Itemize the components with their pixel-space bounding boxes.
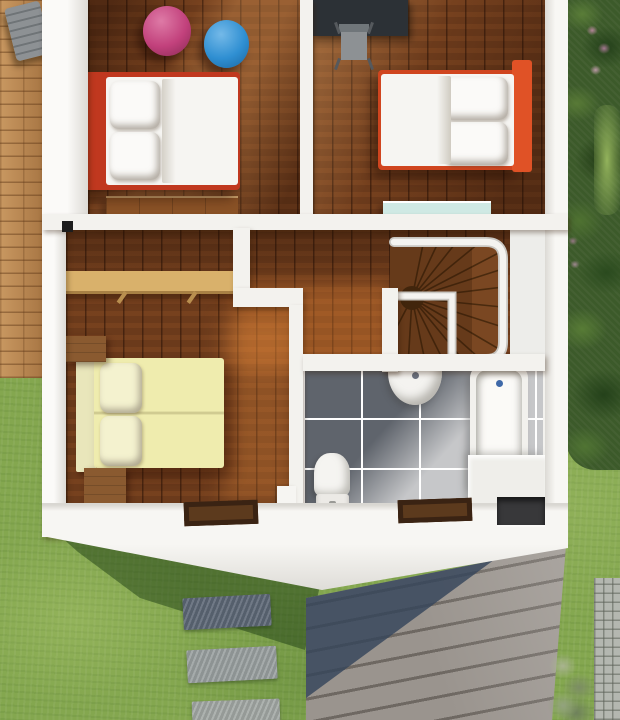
pillow — [444, 122, 508, 165]
bed-red-frame — [84, 72, 240, 190]
bed-orange-frame — [378, 60, 532, 172]
toilet-bowl — [314, 453, 350, 498]
blue-ball-seat — [204, 20, 249, 68]
pink-flower-cluster — [582, 16, 616, 88]
wall-horizontal-main — [42, 214, 568, 230]
pillow — [100, 416, 142, 466]
wall-outer-left-lower — [42, 221, 66, 537]
nightstand — [84, 468, 126, 504]
duvet — [162, 79, 238, 183]
bathtub-drain — [496, 380, 503, 387]
stepping-stone — [182, 594, 272, 631]
bath-mat — [398, 498, 473, 524]
winder-staircase — [386, 234, 512, 366]
grass-gap-in-shrubs — [594, 105, 620, 215]
bedroom-doormat — [184, 500, 259, 527]
faucet — [412, 372, 419, 379]
nightstand — [66, 336, 106, 362]
door-marker — [62, 221, 73, 232]
pillow — [110, 81, 160, 129]
sunlight-overlay-bedroom — [222, 318, 292, 503]
wall-divider-bedrooms — [300, 0, 313, 222]
duvet — [381, 76, 451, 164]
stepping-stone — [192, 698, 281, 720]
stepping-stone — [186, 646, 278, 684]
wall-outer-left-upper — [42, 0, 88, 222]
headboard — [76, 352, 96, 472]
headboard — [512, 60, 532, 172]
garden-bush — [544, 648, 598, 720]
desk-chair — [332, 24, 376, 68]
pillow — [444, 77, 508, 120]
chair-back — [339, 24, 369, 32]
chair-seat — [341, 32, 367, 60]
pillow — [110, 132, 160, 180]
pillow — [100, 363, 142, 413]
recessed-niche — [497, 497, 545, 525]
wall-bathroom-top — [303, 354, 545, 371]
pink-ball-seat — [143, 6, 191, 56]
bed-yellow — [76, 350, 224, 474]
wall-shelf — [64, 271, 240, 294]
stair-landing — [510, 226, 545, 372]
floor-plan-render — [0, 0, 620, 720]
wall-outer-right — [545, 0, 568, 528]
